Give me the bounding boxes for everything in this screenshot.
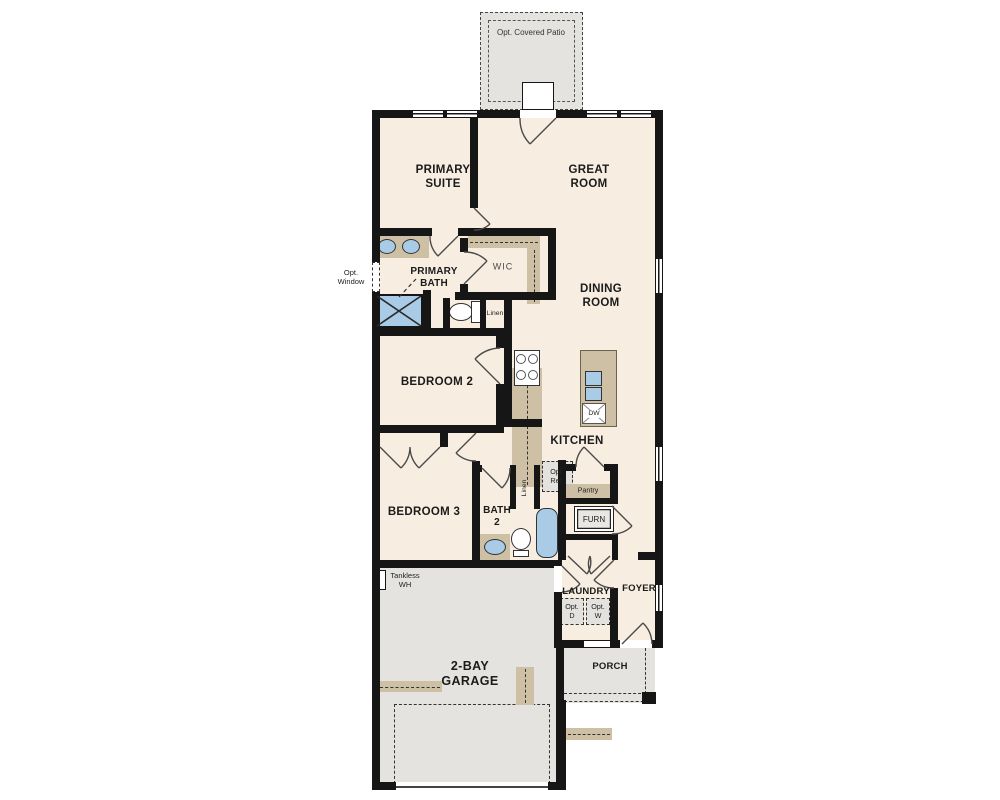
island-sink-basin-1 xyxy=(585,371,602,386)
wall-bath2-top xyxy=(472,465,482,472)
primary-bath-label: PRIMARY BATH xyxy=(404,266,464,290)
garage-entry-opening xyxy=(554,566,562,592)
wic-shelf-top xyxy=(468,236,540,248)
floor-plan: FURN xyxy=(0,0,1000,800)
wall-furnace-coat xyxy=(560,534,618,540)
optional-window-label: Opt. Window xyxy=(331,268,371,286)
wall-bedroom2-bottom xyxy=(372,425,504,433)
wall-closet3-right xyxy=(440,433,448,447)
garage-label: 2-BAY GARAGE xyxy=(430,659,510,690)
porch-dashed-edge xyxy=(564,648,654,702)
shower xyxy=(375,294,423,328)
wall-bedroom3-right xyxy=(472,461,480,560)
window-greatroom-1 xyxy=(586,110,618,118)
wall-wic-left-a xyxy=(460,238,468,252)
burner-2 xyxy=(528,354,538,364)
wall-coat-right xyxy=(612,534,618,560)
great-room-label: GREAT ROOM xyxy=(564,163,614,191)
wall-kitchen-left xyxy=(504,300,512,427)
bath2-label: BATH 2 xyxy=(480,505,514,529)
foyer-label: FOYER xyxy=(622,583,656,595)
driveway-dashed xyxy=(394,704,550,784)
burner-4 xyxy=(528,370,538,380)
tankless-wh-label: Tankless WH xyxy=(385,571,425,589)
laundry-label: LAUNDRY xyxy=(562,586,610,598)
vanity-sink-1 xyxy=(378,239,396,254)
toilet-base-bath2 xyxy=(513,550,529,557)
wall-garage-top xyxy=(372,560,562,568)
optional-washer-label: Opt. W xyxy=(588,603,608,621)
primary-suite-label: PRIMARY SUITE xyxy=(408,163,478,191)
toilet-bowl-primary xyxy=(449,303,473,321)
wall-garage-bottom-right xyxy=(548,782,566,790)
wall-bedroom2-right-a xyxy=(496,336,504,348)
dishwasher-label: DW xyxy=(587,410,600,418)
linen-closet-bath2 xyxy=(516,667,534,705)
island-sink-basin-2 xyxy=(585,387,602,401)
bedroom3-label: BEDROOM 3 xyxy=(388,505,460,519)
wall-exterior-right xyxy=(655,110,663,648)
wall-laundry-foyer xyxy=(610,588,618,640)
wall-wic-bottom xyxy=(455,292,556,300)
front-door-opening xyxy=(620,640,652,648)
patio-label: Opt. Covered Patio xyxy=(494,28,569,38)
wall-linen2-right xyxy=(534,465,540,509)
wall-pantry-furnace xyxy=(566,498,610,504)
wall-bedroom2-top xyxy=(372,328,504,336)
dining-room-label: DINING ROOM xyxy=(574,282,628,310)
wall-garage-right xyxy=(556,700,566,790)
wall-porch-left xyxy=(556,648,564,706)
burner-3 xyxy=(516,370,526,380)
optional-window xyxy=(372,262,380,292)
wall-suite-bath xyxy=(372,228,432,236)
wall-wic-right xyxy=(548,228,556,300)
wall-counter-bottom xyxy=(504,419,542,427)
window-greatroom-2 xyxy=(620,110,652,118)
linen-bath2-label: Linen xyxy=(521,480,529,497)
window-dining xyxy=(655,258,663,294)
patio-door-panel xyxy=(522,82,554,110)
porch-column xyxy=(642,692,656,704)
porch-step xyxy=(584,641,610,647)
pantry-label: Pantry xyxy=(578,487,599,496)
bath2-sink xyxy=(484,539,506,555)
toilet-bowl-bath2 xyxy=(511,528,531,550)
wic-label: WIC xyxy=(493,262,514,273)
bedroom2-label: BEDROOM 2 xyxy=(401,375,473,389)
wall-pantry-right xyxy=(610,464,618,504)
linen-primary-label: Linen xyxy=(487,310,504,318)
wall-foyer-top xyxy=(638,552,663,560)
optional-refrigerator-label: Opt. Ref. xyxy=(544,468,570,486)
vanity-sink-2 xyxy=(402,239,420,254)
kitchen-label: KITCHEN xyxy=(550,434,603,448)
window-suite-1 xyxy=(412,110,444,118)
window-kitchen xyxy=(655,446,663,482)
coat-closet-shelf xyxy=(566,728,612,740)
porch-label: PORCH xyxy=(592,661,627,673)
patio-door-opening xyxy=(520,110,556,118)
wall-exterior-left xyxy=(372,110,380,790)
window-foyer xyxy=(655,584,663,612)
bathtub xyxy=(536,508,558,558)
furnace: FURN xyxy=(574,506,614,532)
optional-dryer-label: Opt. D xyxy=(562,603,582,621)
wall-linen2-left xyxy=(510,465,516,509)
wall-garage-bottom-left xyxy=(372,782,396,790)
garage-door-sill xyxy=(396,786,548,788)
wall-wic-top xyxy=(458,228,556,236)
burner-1 xyxy=(516,354,526,364)
window-suite-2 xyxy=(446,110,478,118)
